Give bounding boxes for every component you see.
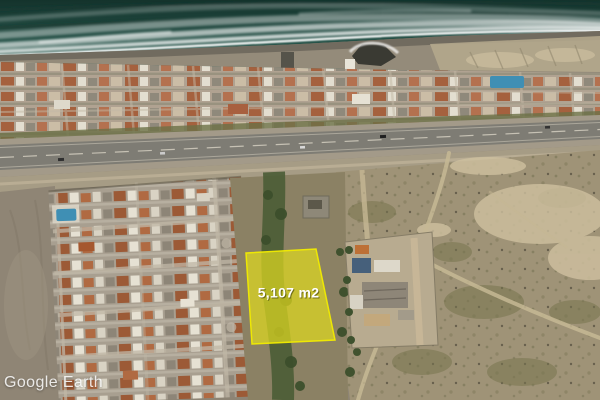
- neighborhood-pool: [56, 209, 76, 222]
- blue-roof-building: [352, 258, 371, 273]
- aerial-imagery: 5,107 m2 5,107 m2: [0, 0, 600, 400]
- large-terracotta-roof: [228, 104, 248, 114]
- residential-neighborhood: [48, 177, 254, 400]
- walled-compound: [343, 232, 438, 348]
- large-white-roof: [54, 100, 70, 109]
- orange-roof-building: [355, 245, 369, 254]
- parcel-area-label: 5,107 m2: [258, 285, 320, 301]
- google-earth-viewport[interactable]: 5,107 m2 5,107 m2 Google Earth: [0, 0, 600, 400]
- large-white-roof: [352, 94, 370, 104]
- vacant-dirt-field: [0, 186, 58, 400]
- swimming-pool: [490, 76, 524, 88]
